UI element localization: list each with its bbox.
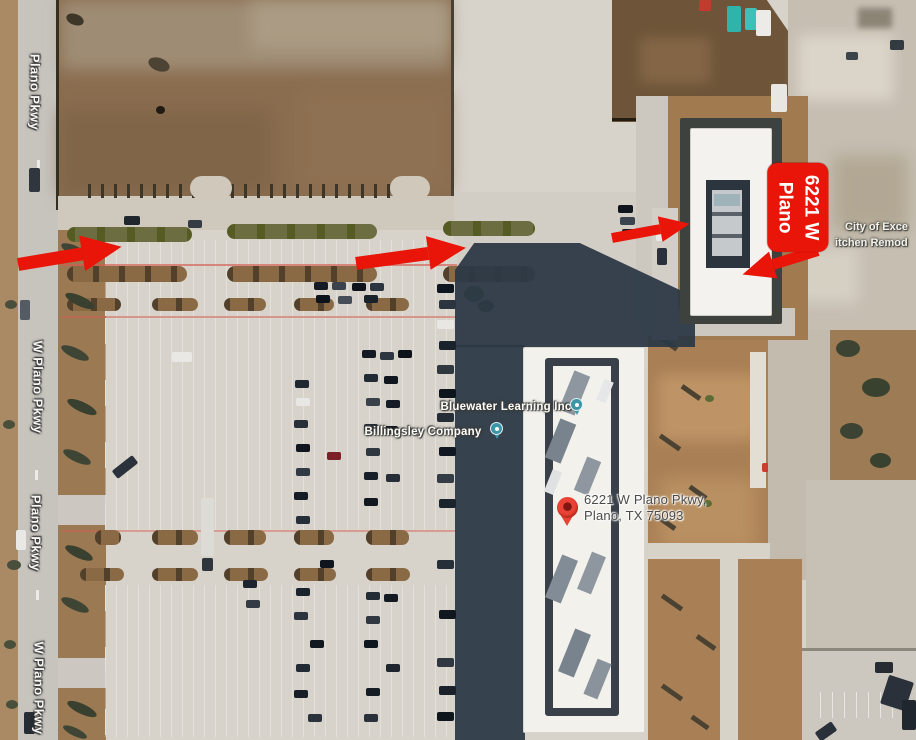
- vehicle: [618, 205, 633, 213]
- vehicle: [439, 341, 456, 350]
- vehicle: [338, 296, 352, 304]
- satellite-map-canvas[interactable]: Plano PkwyW Plano PkwyPlano PkwyW Plano …: [0, 0, 916, 740]
- vehicle: [439, 499, 456, 508]
- vehicle: [439, 389, 456, 398]
- clipped-poi-label-line1: City of Exce: [845, 221, 908, 233]
- vehicle: [327, 452, 341, 460]
- dirt-patch: [658, 375, 758, 440]
- driveway: [58, 658, 106, 688]
- vehicle: [902, 700, 916, 730]
- poi-label[interactable]: Billingsley Company: [365, 426, 482, 438]
- concrete-pad-southeast: [806, 480, 916, 650]
- roadside-bush: [7, 560, 21, 570]
- lane-marking: [36, 590, 39, 600]
- vehicle: [846, 52, 858, 60]
- parking-island: [152, 530, 198, 545]
- vehicle: [296, 444, 310, 452]
- vehicle: [316, 295, 330, 303]
- vehicle: [320, 560, 334, 568]
- parking-island: [227, 266, 377, 282]
- parking-island: [294, 530, 334, 545]
- arrow-head: [80, 229, 125, 271]
- vehicle: [699, 0, 711, 11]
- vehicle: [172, 352, 192, 362]
- parking-island: [294, 568, 336, 581]
- curb-line-red: [62, 316, 457, 318]
- vehicle: [296, 398, 310, 406]
- vehicle: [364, 374, 378, 382]
- vehicle: [29, 168, 40, 192]
- tpin-dot: [575, 403, 579, 407]
- vehicle: [364, 472, 378, 480]
- address-line-2: Plano, TX 75093: [584, 508, 707, 524]
- roadside-bush: [3, 420, 15, 429]
- rubble-debris: [858, 8, 892, 28]
- dirt-south-right: [738, 559, 802, 740]
- vehicle: [439, 686, 456, 695]
- street-label: Plano Pkwy: [29, 495, 44, 571]
- vehicle: [362, 350, 376, 358]
- soil-patch: [640, 38, 710, 83]
- arrow-head: [426, 231, 468, 270]
- parking-island: [224, 530, 266, 545]
- vehicle: [294, 420, 308, 428]
- lane-marking: [35, 470, 38, 480]
- rubble-patch: [833, 155, 908, 230]
- dropped-pin-head: [557, 497, 578, 518]
- vehicle: [364, 295, 378, 303]
- field-patch: [300, 90, 450, 190]
- vehicle: [398, 350, 412, 358]
- vehicle: [437, 712, 454, 721]
- vehicle: [243, 580, 257, 588]
- vehicle: [366, 592, 380, 600]
- arrow-head: [658, 211, 692, 242]
- vehicle: [20, 300, 30, 320]
- dropped-pin-address-label: 6221 W Plano Pkwy, Plano, TX 75093: [584, 492, 707, 524]
- parking-island: [224, 298, 266, 311]
- vehicle: [875, 662, 893, 673]
- vehicle: [294, 612, 308, 620]
- vehicle: [386, 664, 400, 672]
- building2-panel: [714, 194, 740, 206]
- address-line-1: 6221 W Plano Pkwy,: [584, 492, 707, 508]
- vehicle: [386, 400, 400, 408]
- vehicle: [294, 492, 308, 500]
- roadside-dirt: [0, 0, 18, 740]
- vehicle: [294, 690, 308, 698]
- walkway-horizontal: [648, 543, 770, 559]
- building2-line: [712, 212, 742, 216]
- building2-line: [712, 234, 742, 238]
- vehicle: [296, 468, 310, 476]
- roadside-bush: [6, 700, 18, 709]
- vehicle: [366, 398, 380, 406]
- vehicle: [188, 220, 202, 228]
- field-notch: [190, 176, 232, 200]
- vehicle: [437, 560, 454, 569]
- arrow-shaft: [611, 224, 661, 243]
- annotation-line-1: 6221 W: [798, 175, 824, 240]
- tree: [862, 378, 890, 397]
- poi-pin-icon[interactable]: [570, 398, 584, 417]
- walkway-vertical: [720, 559, 738, 740]
- parking-island: [152, 298, 198, 311]
- vehicle: [756, 10, 771, 36]
- vehicle: [890, 40, 904, 50]
- parking-island: [366, 530, 409, 545]
- rubble-patch: [798, 35, 893, 100]
- vehicle: [296, 664, 310, 672]
- vehicle: [437, 284, 454, 293]
- vehicle: [314, 282, 328, 290]
- dirt-south-left: [648, 559, 720, 740]
- vehicle: [657, 248, 667, 265]
- vehicle: [366, 616, 380, 624]
- field-patch: [60, 110, 270, 195]
- street-label: W Plano Pkwy: [31, 341, 46, 434]
- annotation-callout-6221-w-plano: 6221 W Plano: [764, 161, 832, 255]
- vehicle: [332, 282, 346, 290]
- vehicle: [364, 498, 378, 506]
- poi-label[interactable]: Bluewater Learning Inc: [441, 401, 572, 413]
- vehicle: [439, 300, 456, 309]
- field-bush-row: [88, 184, 418, 198]
- field-notch: [390, 176, 430, 200]
- vehicle: [296, 588, 310, 596]
- vehicle: [384, 594, 398, 602]
- vehicle: [364, 640, 378, 648]
- vehicle: [364, 714, 378, 722]
- vehicle: [384, 376, 398, 384]
- annotation-callout-body: 6221 W Plano: [767, 163, 828, 252]
- vehicle: [380, 352, 394, 360]
- vehicle: [439, 610, 456, 619]
- tpin-dot: [495, 427, 499, 431]
- arrow-shaft: [355, 247, 429, 270]
- roadside-bush: [5, 300, 17, 309]
- fence-line: [451, 0, 454, 208]
- vehicle: [437, 658, 454, 667]
- tree: [870, 453, 891, 468]
- vehicle: [124, 216, 140, 225]
- vehicle: [310, 640, 324, 648]
- tree: [836, 340, 860, 357]
- vehicle: [366, 448, 380, 456]
- arrow-shaft: [17, 247, 84, 271]
- street-label: Plano Pkwy: [28, 54, 43, 130]
- vehicle: [296, 516, 310, 524]
- field-hole: [156, 106, 165, 114]
- landscape-median: [227, 224, 377, 239]
- street-label: W Plano Pkwy: [32, 642, 47, 735]
- vehicle: [370, 283, 384, 291]
- vehicle: [439, 447, 456, 456]
- parking-island: [80, 568, 124, 581]
- driveway: [58, 495, 106, 525]
- vehicle: [308, 714, 322, 722]
- tree: [840, 423, 863, 439]
- vehicle: [727, 6, 741, 32]
- vehicle: [437, 365, 454, 374]
- parking-island: [152, 568, 198, 581]
- bush-dot: [705, 395, 714, 402]
- vehicle: [771, 84, 787, 112]
- stall-stripes: [105, 585, 457, 737]
- vehicle: [16, 530, 26, 550]
- vehicle: [201, 498, 214, 556]
- vehicle: [437, 474, 454, 483]
- vehicle: [202, 558, 213, 571]
- vehicle: [246, 600, 260, 608]
- vehicle: [366, 688, 380, 696]
- annotation-line-2: Plano: [772, 175, 798, 240]
- vehicle: [437, 413, 454, 422]
- vehicle: [295, 380, 309, 388]
- parking-island: [95, 530, 121, 545]
- field-patch: [250, 0, 450, 50]
- roadside-bush: [4, 640, 16, 649]
- vehicle: [437, 320, 454, 329]
- fence-line: [56, 0, 59, 210]
- vehicle: [386, 474, 400, 482]
- poi-pin-icon[interactable]: [490, 422, 504, 441]
- dropped-pin-icon[interactable]: [556, 497, 580, 531]
- clipped-poi-label-line2: itchen Remod: [835, 237, 908, 249]
- vehicle: [352, 283, 366, 291]
- parking-island: [366, 568, 410, 581]
